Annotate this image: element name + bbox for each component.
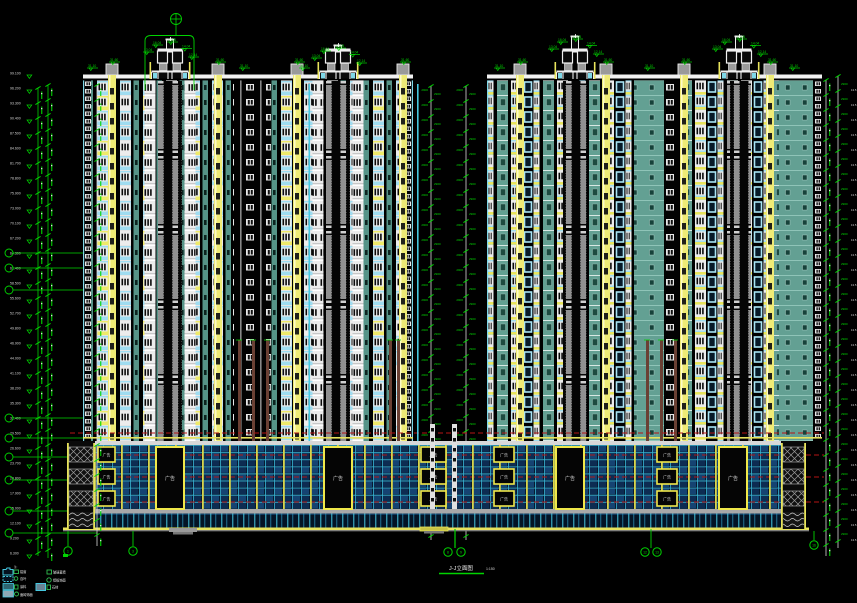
svg-text:铝板饰面: 铝板饰面	[53, 578, 66, 583]
svg-text:2900: 2900	[434, 302, 441, 306]
svg-text:J-J立面图: J-J立面图	[449, 564, 473, 572]
svg-text:2900: 2900	[841, 352, 848, 356]
svg-text:96.200: 96.200	[10, 87, 21, 91]
svg-text:2900: 2900	[434, 227, 441, 231]
svg-text:2900: 2900	[421, 433, 428, 437]
svg-text:2900: 2900	[434, 377, 441, 381]
svg-text:14.04: 14.04	[587, 42, 595, 46]
svg-text:2900: 2900	[434, 137, 441, 141]
svg-text:2900: 2900	[469, 227, 476, 231]
svg-text:2900: 2900	[841, 457, 848, 461]
svg-text:14.04: 14.04	[182, 45, 190, 49]
svg-text:13.5: 13.5	[851, 193, 857, 197]
svg-text:2900: 2900	[469, 107, 476, 111]
svg-text:13.5: 13.5	[851, 298, 857, 302]
svg-text:2900: 2900	[421, 388, 428, 392]
svg-text:2900: 2900	[421, 148, 428, 152]
svg-text:13.5: 13.5	[851, 223, 857, 227]
svg-text:2900: 2900	[434, 272, 441, 276]
svg-text:2900: 2900	[456, 328, 463, 332]
svg-text:2900: 2900	[841, 397, 848, 401]
svg-text:75.900: 75.900	[10, 192, 21, 196]
svg-text:广告: 广告	[663, 452, 671, 458]
svg-text:13.5: 13.5	[851, 313, 857, 317]
svg-text:2900: 2900	[421, 178, 428, 182]
svg-text:2900: 2900	[421, 223, 428, 227]
svg-text:2900: 2900	[469, 182, 476, 186]
svg-text:16.04: 16.04	[722, 38, 730, 42]
svg-text:2900: 2900	[469, 287, 476, 291]
svg-text:12: 12	[643, 551, 647, 555]
svg-text:2900: 2900	[456, 298, 463, 302]
svg-text:41.100: 41.100	[10, 372, 21, 376]
svg-text:13.5: 13.5	[851, 103, 857, 107]
svg-text:31.10: 31.10	[300, 64, 308, 68]
svg-text:广告: 广告	[500, 474, 508, 480]
svg-text:2900: 2900	[469, 272, 476, 276]
svg-text:12.14: 12.14	[594, 50, 602, 54]
svg-text:13: 13	[655, 551, 659, 555]
svg-text:石材: 石材	[52, 585, 59, 590]
svg-text:2900: 2900	[841, 127, 848, 131]
svg-text:8: 8	[447, 551, 449, 555]
svg-text:13.5: 13.5	[851, 478, 857, 482]
svg-text:广告: 广告	[103, 452, 111, 458]
svg-text:2900: 2900	[421, 238, 428, 242]
svg-text:2900: 2900	[421, 193, 428, 197]
svg-text:2900: 2900	[456, 88, 463, 92]
svg-text:2900: 2900	[456, 238, 463, 242]
svg-text:2900: 2900	[434, 257, 441, 261]
svg-text:99.100: 99.100	[10, 72, 21, 76]
svg-text:32.400: 32.400	[10, 417, 21, 421]
svg-text:2900: 2900	[469, 257, 476, 261]
svg-text:31.60: 31.60	[110, 58, 118, 62]
svg-text:2900: 2900	[421, 403, 428, 407]
svg-text:2900: 2900	[456, 208, 463, 212]
svg-text:2900: 2900	[456, 343, 463, 347]
svg-text:70.100: 70.100	[10, 222, 21, 226]
svg-text:2900: 2900	[421, 163, 428, 167]
svg-text:2900: 2900	[434, 122, 441, 126]
svg-text:84.600: 84.600	[10, 147, 21, 151]
svg-text:2900: 2900	[456, 283, 463, 287]
svg-text:2900: 2900	[434, 212, 441, 216]
svg-text:6.300: 6.300	[10, 552, 19, 556]
svg-text:16: 16	[812, 544, 816, 548]
svg-text:广告: 广告	[728, 475, 738, 482]
svg-text:13.5: 13.5	[851, 208, 857, 212]
svg-text:2900: 2900	[421, 343, 428, 347]
svg-text:2900: 2900	[841, 427, 848, 431]
svg-text:2900: 2900	[841, 292, 848, 296]
svg-text:2900: 2900	[421, 118, 428, 122]
svg-text:13.5: 13.5	[851, 358, 857, 362]
svg-text:2900: 2900	[434, 347, 441, 351]
svg-text:9.200: 9.200	[10, 537, 19, 541]
svg-text:31.60: 31.60	[682, 58, 690, 62]
svg-text:2900: 2900	[434, 422, 441, 426]
svg-text:广告: 广告	[565, 475, 575, 482]
svg-text:64.300: 64.300	[10, 252, 21, 256]
svg-text:2900: 2900	[841, 262, 848, 266]
svg-text:2900: 2900	[469, 377, 476, 381]
svg-text:2900: 2900	[421, 313, 428, 317]
svg-text:2900: 2900	[469, 392, 476, 396]
svg-text:2900: 2900	[456, 163, 463, 167]
svg-text:2900: 2900	[841, 97, 848, 101]
svg-text:67.200: 67.200	[10, 237, 21, 241]
svg-text:13.5: 13.5	[851, 283, 857, 287]
svg-text:81.700: 81.700	[10, 162, 21, 166]
svg-text:广告: 广告	[500, 452, 508, 458]
svg-text:2900: 2900	[841, 112, 848, 116]
svg-text:2900: 2900	[469, 302, 476, 306]
svg-text:31.60: 31.60	[518, 58, 526, 62]
svg-text:1:150: 1:150	[486, 567, 495, 571]
svg-text:2900: 2900	[421, 133, 428, 137]
svg-text:2900: 2900	[469, 212, 476, 216]
svg-text:12.14: 12.14	[758, 50, 766, 54]
svg-text:14.04: 14.04	[751, 42, 759, 46]
svg-text:49.800: 49.800	[10, 327, 21, 331]
svg-text:面砖饰面: 面砖饰面	[20, 592, 33, 597]
svg-text:16.04: 16.04	[558, 38, 566, 42]
svg-text:93.300: 93.300	[10, 102, 21, 106]
svg-text:2900: 2900	[421, 373, 428, 377]
svg-text:13.5: 13.5	[851, 148, 857, 152]
svg-text:2900: 2900	[841, 142, 848, 146]
svg-text:2900: 2900	[456, 433, 463, 437]
svg-text:13.04: 13.04	[549, 45, 557, 49]
svg-text:23.700: 23.700	[10, 462, 21, 466]
svg-text:2900: 2900	[841, 187, 848, 191]
svg-text:13.5: 13.5	[851, 268, 857, 272]
svg-text:2900: 2900	[434, 287, 441, 291]
svg-text:广告: 广告	[165, 475, 175, 482]
svg-text:2900: 2900	[434, 317, 441, 321]
svg-text:2900: 2900	[469, 317, 476, 321]
svg-text:2900: 2900	[841, 232, 848, 236]
svg-text:玻璃幕墙: 玻璃幕墙	[53, 570, 67, 575]
svg-text:26.600: 26.600	[10, 447, 21, 451]
svg-text:2900: 2900	[841, 337, 848, 341]
svg-text:2900: 2900	[434, 362, 441, 366]
svg-text:2900: 2900	[469, 347, 476, 351]
svg-text:13.5: 13.5	[851, 328, 857, 332]
svg-text:13.04: 13.04	[713, 45, 721, 49]
svg-text:13.5: 13.5	[851, 448, 857, 452]
svg-text:31.60: 31.60	[768, 58, 776, 62]
svg-text:2900: 2900	[841, 442, 848, 446]
svg-text:2900: 2900	[456, 223, 463, 227]
svg-text:2900: 2900	[841, 502, 848, 506]
svg-text:2900: 2900	[841, 157, 848, 161]
svg-text:2900: 2900	[421, 358, 428, 362]
svg-text:2900: 2900	[421, 103, 428, 107]
svg-text:2900: 2900	[469, 242, 476, 246]
svg-text:1: 1	[67, 550, 69, 554]
svg-text:2900: 2900	[434, 392, 441, 396]
svg-text:13.04: 13.04	[312, 54, 320, 58]
svg-text:17.900: 17.900	[10, 492, 21, 496]
svg-text:2900: 2900	[434, 197, 441, 201]
svg-text:2900: 2900	[456, 313, 463, 317]
svg-text:2900: 2900	[841, 487, 848, 491]
svg-text:注:: 注:	[14, 565, 18, 569]
svg-text:广告: 广告	[103, 496, 111, 502]
svg-text:2900: 2900	[841, 82, 848, 86]
svg-text:2900: 2900	[456, 253, 463, 257]
svg-text:13.5: 13.5	[851, 163, 857, 167]
svg-text:2900: 2900	[841, 277, 848, 281]
svg-text:2900: 2900	[434, 92, 441, 96]
svg-text:31.10: 31.10	[88, 64, 96, 68]
svg-text:2900: 2900	[469, 167, 476, 171]
svg-text:31.60: 31.60	[401, 58, 409, 62]
svg-text:31.60: 31.60	[295, 58, 303, 62]
svg-text:2900: 2900	[469, 137, 476, 141]
svg-text:2900: 2900	[841, 307, 848, 311]
svg-text:2900: 2900	[456, 193, 463, 197]
svg-text:2900: 2900	[841, 247, 848, 251]
svg-text:2900: 2900	[456, 268, 463, 272]
svg-text:2900: 2900	[456, 418, 463, 422]
svg-text:2900: 2900	[434, 182, 441, 186]
svg-text:78.800: 78.800	[10, 177, 21, 181]
svg-text:2900: 2900	[456, 403, 463, 407]
svg-text:2900: 2900	[434, 107, 441, 111]
svg-text:2900: 2900	[421, 418, 428, 422]
svg-text:2900: 2900	[421, 268, 428, 272]
svg-text:90.400: 90.400	[10, 117, 21, 121]
svg-text:2900: 2900	[421, 208, 428, 212]
svg-text:2900: 2900	[456, 358, 463, 362]
svg-text:2900: 2900	[841, 382, 848, 386]
svg-text:2900: 2900	[469, 122, 476, 126]
svg-text:广告: 广告	[663, 496, 671, 502]
svg-text:13.5: 13.5	[851, 238, 857, 242]
svg-text:61.400: 61.400	[10, 267, 21, 271]
svg-text:9: 9	[460, 551, 462, 555]
svg-text:13.5: 13.5	[851, 178, 857, 182]
svg-text:87.500: 87.500	[10, 132, 21, 136]
svg-text:2900: 2900	[434, 242, 441, 246]
svg-text:13.5: 13.5	[851, 463, 857, 467]
svg-text:35.300: 35.300	[10, 402, 21, 406]
svg-text:2900: 2900	[456, 388, 463, 392]
svg-text:2900: 2900	[456, 373, 463, 377]
svg-text:2900: 2900	[421, 328, 428, 332]
svg-text:2900: 2900	[469, 332, 476, 336]
svg-text:2900: 2900	[841, 472, 848, 476]
svg-text:13.5: 13.5	[851, 433, 857, 437]
svg-text:百叶: 百叶	[20, 576, 27, 581]
svg-text:13.5: 13.5	[851, 523, 857, 527]
svg-text:2900: 2900	[434, 407, 441, 411]
svg-text:2900: 2900	[456, 133, 463, 137]
svg-text:13.5: 13.5	[851, 388, 857, 392]
svg-text:31.10: 31.10	[645, 64, 653, 68]
svg-text:31.10: 31.10	[240, 64, 248, 68]
svg-text:14.04: 14.04	[350, 51, 358, 55]
svg-text:13.5: 13.5	[851, 253, 857, 257]
svg-text:2900: 2900	[456, 103, 463, 107]
svg-text:2900: 2900	[469, 437, 476, 441]
svg-text:13.5: 13.5	[851, 403, 857, 407]
svg-text:2900: 2900	[469, 362, 476, 366]
svg-text:2900: 2900	[841, 517, 848, 521]
svg-text:13.5: 13.5	[851, 343, 857, 347]
svg-text:2900: 2900	[841, 367, 848, 371]
svg-text:3: 3	[132, 550, 134, 554]
svg-text:12.14: 12.14	[357, 59, 365, 63]
svg-text:2900: 2900	[841, 322, 848, 326]
svg-text:73.000: 73.000	[10, 207, 21, 211]
svg-text:2900: 2900	[434, 167, 441, 171]
svg-text:16.04: 16.04	[153, 41, 161, 45]
svg-text:31.10: 31.10	[790, 64, 798, 68]
svg-text:13.5: 13.5	[851, 133, 857, 137]
svg-text:2900: 2900	[434, 437, 441, 441]
svg-text:2900: 2900	[421, 88, 428, 92]
svg-text:2900: 2900	[841, 532, 848, 536]
svg-text:2900: 2900	[421, 283, 428, 287]
svg-text:广告: 广告	[500, 496, 508, 502]
svg-text:铝窗: 铝窗	[20, 569, 26, 574]
svg-text:广告: 广告	[103, 474, 111, 480]
svg-text:13.5: 13.5	[851, 538, 857, 542]
svg-text:2900: 2900	[841, 412, 848, 416]
svg-text:31.10: 31.10	[495, 64, 503, 68]
svg-text:12.14: 12.14	[189, 53, 197, 57]
svg-text:2900: 2900	[469, 152, 476, 156]
svg-text:44.000: 44.000	[10, 357, 21, 361]
svg-text:2900: 2900	[841, 217, 848, 221]
svg-text:2900: 2900	[434, 152, 441, 156]
svg-text:2900: 2900	[434, 332, 441, 336]
svg-text:2900: 2900	[456, 178, 463, 182]
svg-text:13.5: 13.5	[851, 118, 857, 122]
svg-text:55.600: 55.600	[10, 297, 21, 301]
svg-text:52.700: 52.700	[10, 312, 21, 316]
svg-text:2900: 2900	[469, 92, 476, 96]
svg-text:31.60: 31.60	[604, 58, 612, 62]
svg-text:31.60: 31.60	[216, 58, 224, 62]
svg-text:2900: 2900	[841, 202, 848, 206]
svg-text:58.500: 58.500	[10, 282, 21, 286]
svg-text:广告: 广告	[663, 474, 671, 480]
svg-text:12.100: 12.100	[10, 522, 21, 526]
svg-text:2900: 2900	[456, 118, 463, 122]
svg-text:2900: 2900	[469, 422, 476, 426]
svg-text:13.5: 13.5	[851, 373, 857, 377]
svg-text:13.5: 13.5	[851, 88, 857, 92]
svg-text:广告: 广告	[333, 475, 343, 482]
svg-text:2900: 2900	[421, 253, 428, 257]
svg-text:2900: 2900	[469, 407, 476, 411]
svg-text:13.5: 13.5	[851, 493, 857, 497]
svg-text:13.5: 13.5	[851, 418, 857, 422]
svg-text:16.04: 16.04	[321, 47, 329, 51]
svg-text:2900: 2900	[841, 172, 848, 176]
svg-text:46.900: 46.900	[10, 342, 21, 346]
svg-text:涂料: 涂料	[20, 584, 27, 589]
svg-text:38.200: 38.200	[10, 387, 21, 391]
svg-text:13.5: 13.5	[851, 508, 857, 512]
svg-text:2900: 2900	[469, 197, 476, 201]
svg-text:2900: 2900	[421, 298, 428, 302]
svg-text:2900: 2900	[456, 148, 463, 152]
